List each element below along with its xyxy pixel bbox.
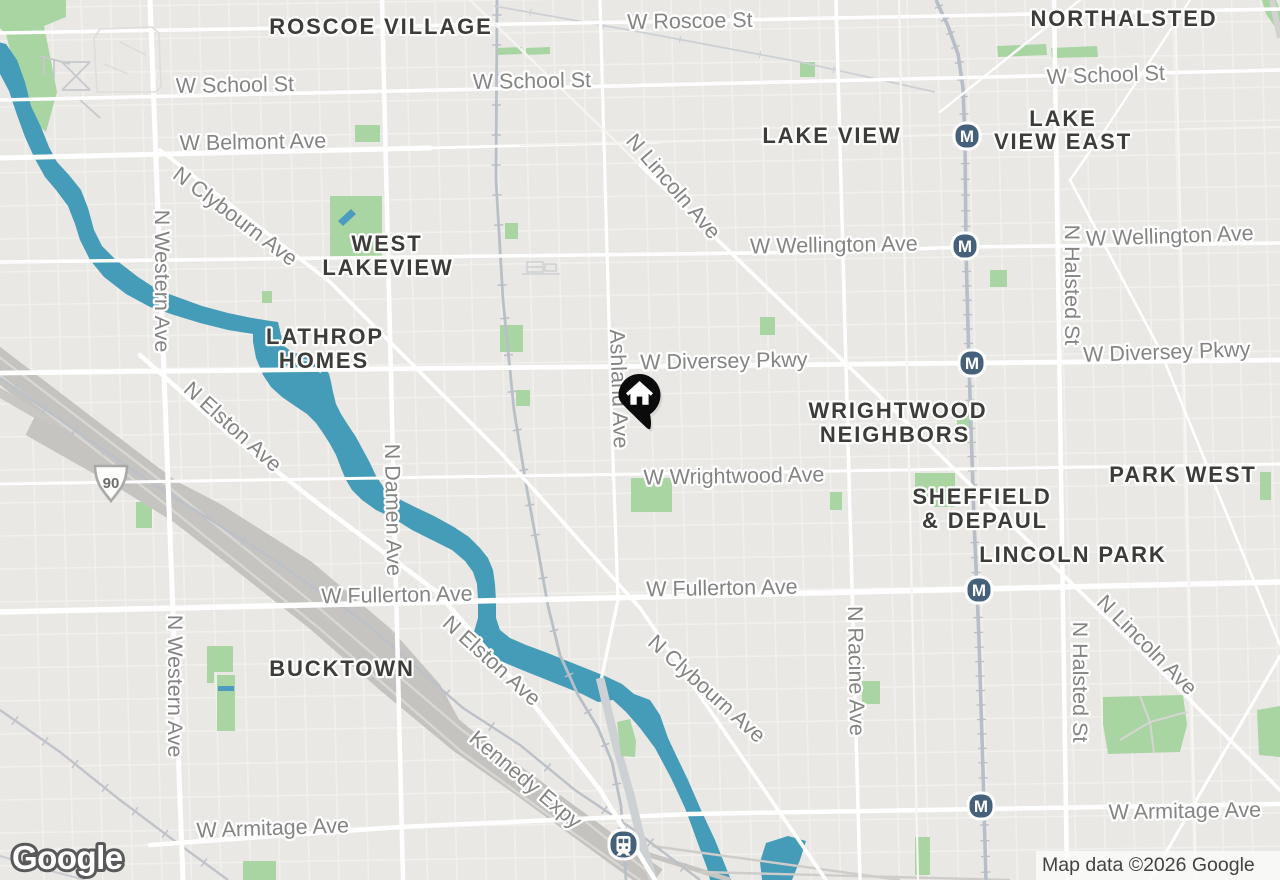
svg-text:LINCOLN PARK: LINCOLN PARK (979, 542, 1166, 567)
svg-text:N Western Ave: N Western Ave (150, 210, 174, 353)
svg-text:W Fullerton Ave: W Fullerton Ave (321, 582, 473, 609)
svg-text:M: M (972, 581, 986, 600)
svg-text:M: M (960, 127, 974, 146)
svg-text:LATHROP: LATHROP (266, 324, 384, 349)
svg-text:BUCKTOWN: BUCKTOWN (269, 656, 415, 681)
svg-text:LAKE: LAKE (1029, 106, 1097, 131)
svg-text:ROSCOE VILLAGE: ROSCOE VILLAGE (269, 14, 492, 39)
svg-text:90: 90 (103, 475, 120, 492)
svg-text:M: M (958, 237, 972, 256)
svg-text:W Belmont Ave: W Belmont Ave (179, 129, 326, 156)
svg-text:WEST: WEST (351, 231, 422, 256)
svg-text:M: M (965, 354, 979, 373)
svg-text:N Halsted St: N Halsted St (1068, 622, 1092, 743)
svg-text:SHEFFIELD: SHEFFIELD (912, 484, 1051, 509)
svg-text:W Roscoe St: W Roscoe St (627, 8, 753, 34)
svg-text:W Diversey Pkwy: W Diversey Pkwy (640, 348, 808, 375)
svg-text:N Halsted St: N Halsted St (1060, 225, 1084, 346)
svg-text:W Fullerton Ave: W Fullerton Ave (646, 575, 798, 602)
svg-text:W Wellington Ave: W Wellington Ave (750, 232, 918, 259)
svg-text:N Damen Ave: N Damen Ave (380, 444, 406, 577)
svg-text:W School St: W School St (176, 72, 295, 98)
svg-text:PARK WEST: PARK WEST (1109, 462, 1256, 487)
svg-text:W School St: W School St (1046, 61, 1165, 89)
svg-text:W Armitage Ave: W Armitage Ave (1108, 798, 1261, 825)
svg-text:N Racine Ave: N Racine Ave (843, 606, 869, 736)
svg-text:Map data ©2026 Google: Map data ©2026 Google (1042, 854, 1255, 876)
svg-text:W School St: W School St (473, 68, 592, 94)
svg-text:LAKEVIEW: LAKEVIEW (322, 255, 453, 280)
svg-text:NORTHALSTED: NORTHALSTED (1030, 6, 1217, 31)
svg-text:N Western Ave: N Western Ave (163, 615, 187, 758)
svg-text:M: M (974, 797, 988, 816)
svg-text:Google: Google (12, 839, 123, 876)
svg-text:HOMES: HOMES (279, 348, 369, 373)
svg-text:VIEW EAST: VIEW EAST (994, 129, 1132, 154)
svg-text:WRIGHTWOOD: WRIGHTWOOD (808, 398, 987, 423)
svg-text:& DEPAUL: & DEPAUL (922, 508, 1048, 533)
svg-text:LAKE VIEW: LAKE VIEW (762, 123, 901, 148)
svg-text:W Wrightwood Ave: W Wrightwood Ave (643, 462, 824, 489)
svg-text:NEIGHBORS: NEIGHBORS (820, 422, 970, 447)
